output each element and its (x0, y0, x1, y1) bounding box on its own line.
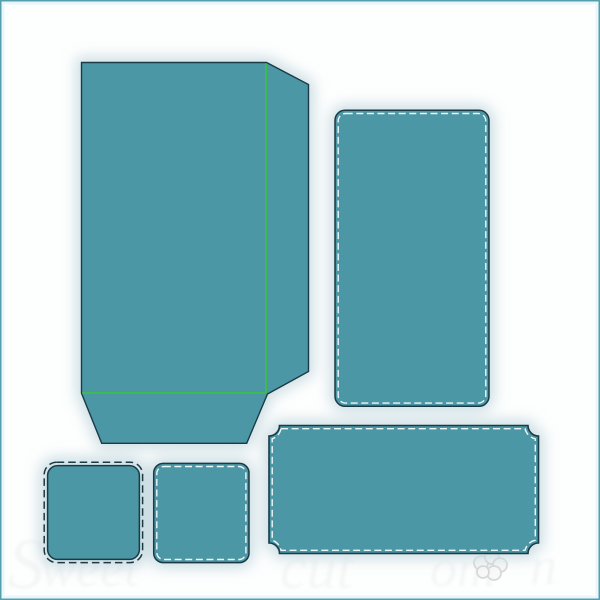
svg-text:S: S (8, 524, 44, 600)
